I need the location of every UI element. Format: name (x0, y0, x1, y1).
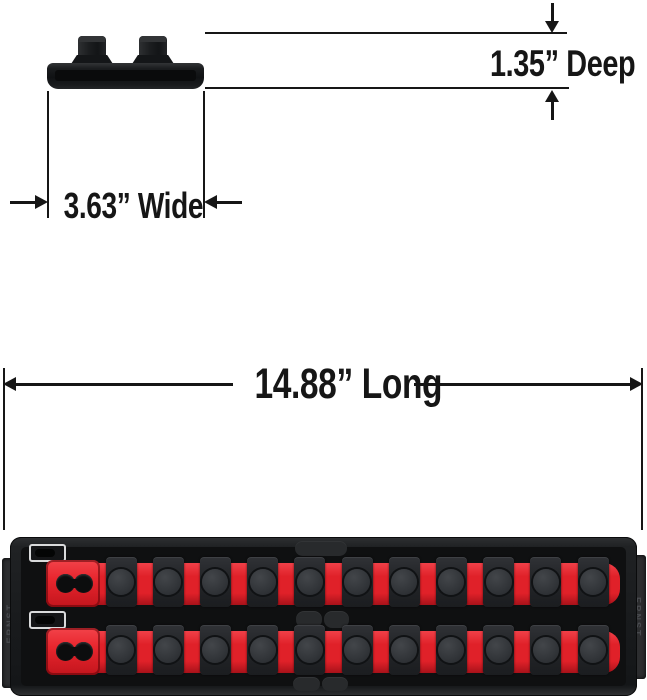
socket-clip (200, 557, 231, 607)
mounting-peg (71, 36, 113, 64)
socket-clip (153, 625, 184, 675)
slider-knob-bar (64, 647, 84, 656)
slider-knob-bar (64, 579, 84, 588)
socket-clip (530, 625, 561, 675)
socket-clip (200, 625, 231, 675)
tray-clip-tab (293, 677, 320, 691)
extension-line (641, 368, 643, 530)
arrow-line (551, 3, 554, 23)
socket-clip (578, 625, 609, 675)
arrowhead-right-icon (630, 377, 643, 391)
socket-clip (342, 625, 373, 675)
deep-dimension-label: 1.35” Deep (425, 45, 635, 82)
extension-line (205, 32, 567, 34)
socket-clip (342, 557, 373, 607)
socket-clip (106, 557, 137, 607)
mounting-peg (132, 36, 174, 64)
socket-clip-row-top (48, 557, 620, 607)
socket-clip (389, 557, 420, 607)
socket-clip (247, 557, 278, 607)
socket-clip (436, 625, 467, 675)
arrow-line (216, 201, 242, 204)
wide-dimension-label: 3.63” Wide (44, 188, 206, 224)
arrow-line (551, 101, 554, 120)
socket-clip (294, 625, 325, 675)
twist-lock-slider (46, 560, 100, 607)
socket-clip (483, 557, 514, 607)
long-dimension-label: 14.88” Long (228, 363, 420, 406)
tray-clip-tab (295, 541, 347, 556)
socket-clip (106, 625, 137, 675)
socket-clip (436, 557, 467, 607)
socket-clip (247, 625, 278, 675)
arrow-line (10, 201, 36, 204)
socket-clip-row-bottom (48, 625, 620, 675)
socket-clip (483, 625, 514, 675)
product-dimension-figure: 3.63” Wide 1.35” Deep 14.88” Long ERNST … (0, 0, 647, 700)
socket-clip (153, 557, 184, 607)
socket-clip (389, 625, 420, 675)
arrow-line (14, 383, 233, 386)
arrow-line (414, 383, 631, 386)
peg-shaft (139, 36, 167, 58)
arrowhead-down-icon (545, 21, 559, 33)
extension-line (3, 368, 5, 530)
socket-clip (530, 557, 561, 607)
peg-shaft (78, 36, 106, 58)
socket-clip (578, 557, 609, 607)
twist-lock-slider (46, 628, 100, 675)
extension-line (205, 87, 569, 89)
rail-end-body (47, 63, 204, 89)
tray-clip-tab (322, 677, 348, 691)
socket-clip (294, 557, 325, 607)
